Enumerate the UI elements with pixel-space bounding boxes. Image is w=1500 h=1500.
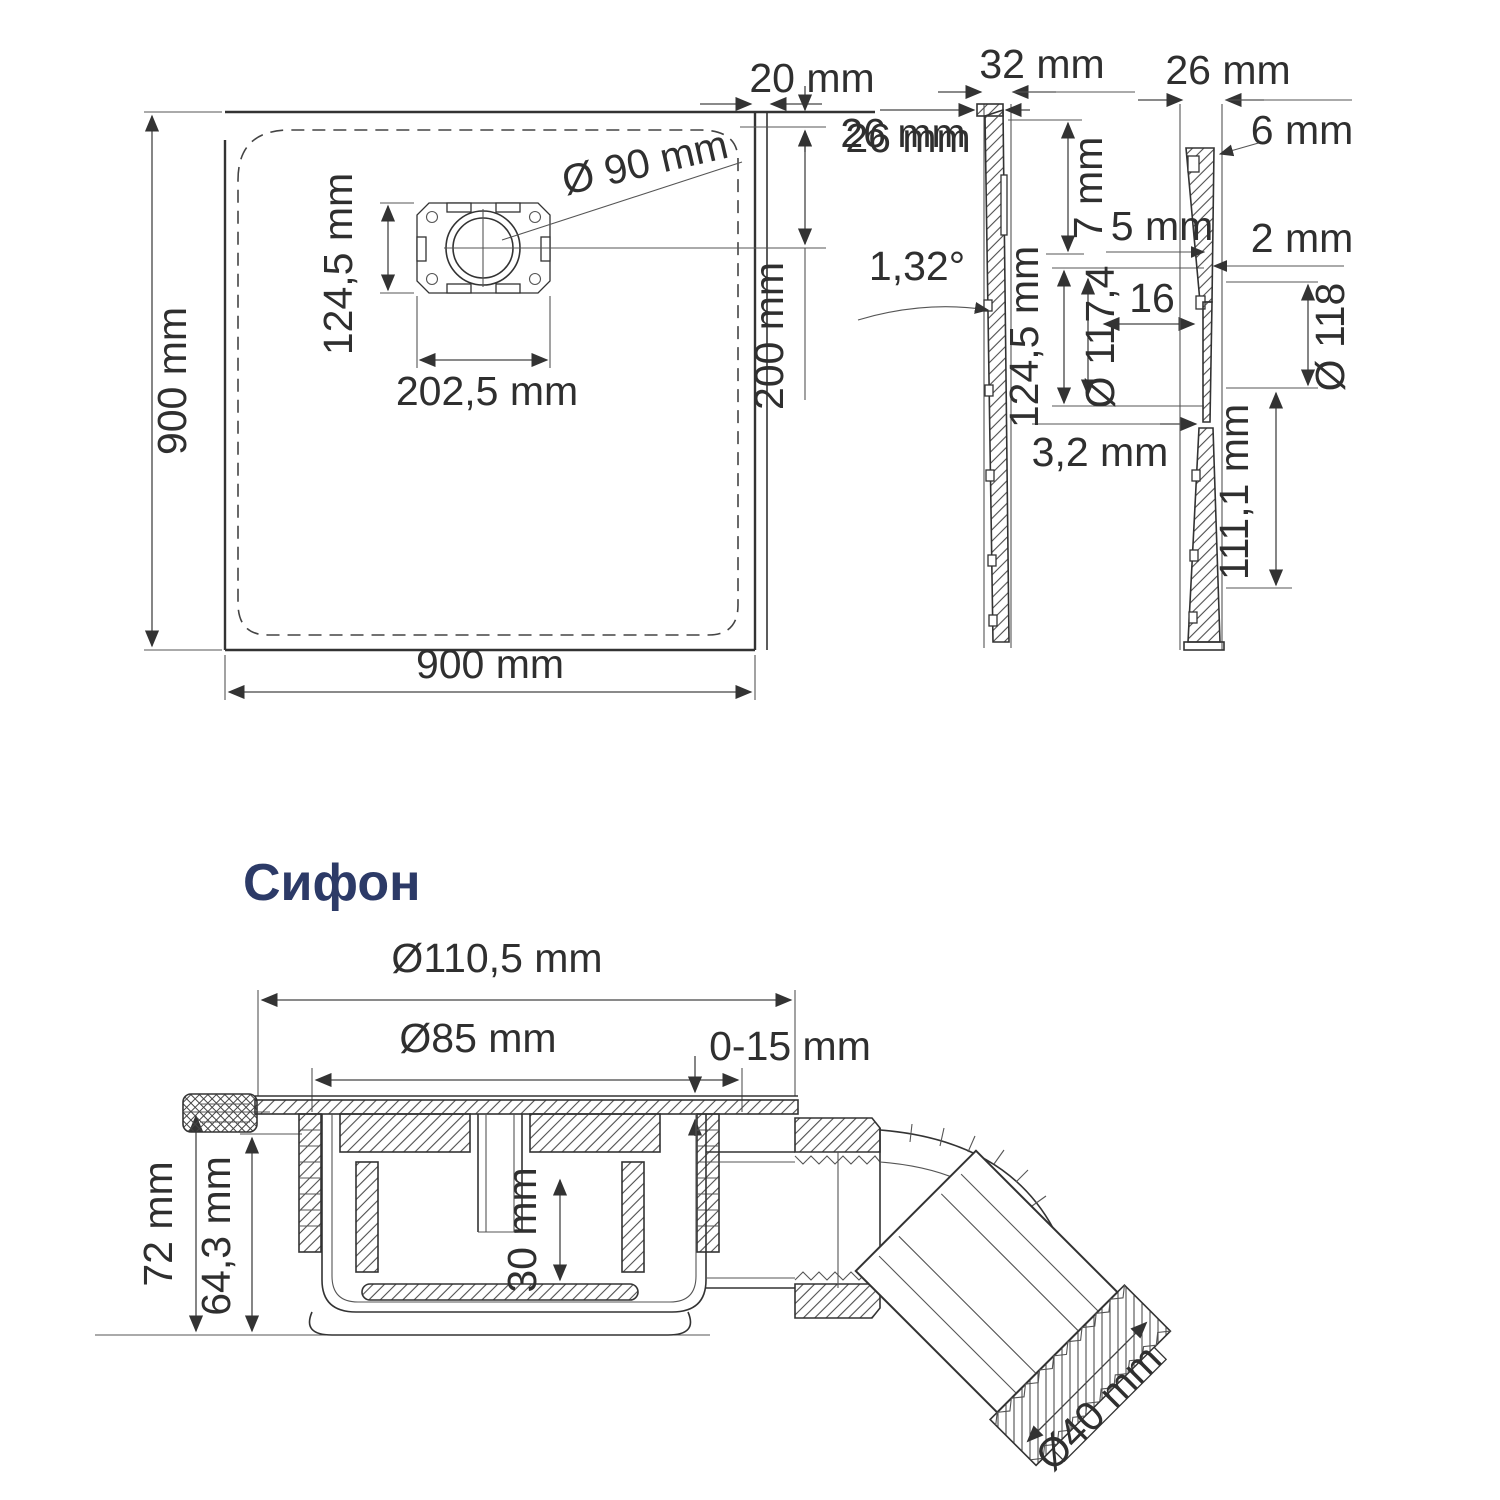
dim-body-dia: Ø85 mm bbox=[399, 1015, 556, 1061]
dim-drain-diameter: Ø 90 mm bbox=[558, 121, 733, 204]
technical-drawing-page: 900 mm 900 mm 124,5 mm 202,5 mm Ø 90 mm … bbox=[0, 0, 1500, 1500]
dim-sec-depth: 111,1 mm bbox=[1211, 404, 1257, 580]
insert-wall-left bbox=[356, 1162, 378, 1272]
dim-sec-right-top-width: 26 mm bbox=[1165, 47, 1290, 93]
dim-sec-right-edge: 6 mm bbox=[1251, 107, 1354, 153]
dim-top-gap: 20 mm bbox=[749, 55, 874, 101]
section-left-slot bbox=[1001, 175, 1007, 235]
threaded-post-left bbox=[299, 1114, 321, 1252]
dim-sec-span: 124,5 mm bbox=[1001, 246, 1047, 428]
plan-view: 900 mm 900 mm 124,5 mm 202,5 mm Ø 90 mm … bbox=[144, 55, 966, 700]
connector-nut-top bbox=[795, 1118, 880, 1152]
dim-sec-step-left: 5 mm bbox=[1111, 203, 1214, 249]
flange-washer bbox=[255, 1100, 798, 1114]
dim-inner-height: 64,3 mm bbox=[193, 1156, 239, 1316]
dim-sec-left-thickness: 3,2 mm bbox=[1032, 429, 1169, 475]
technical-drawing: 900 mm 900 mm 124,5 mm 202,5 mm Ø 90 mm … bbox=[0, 0, 1500, 1500]
dim-center-offset: 200 mm bbox=[746, 262, 792, 410]
dim-cup-depth: 30 mm bbox=[499, 1167, 545, 1292]
dim-drain-width: 202,5 mm bbox=[396, 368, 578, 414]
base bbox=[310, 1312, 691, 1335]
siphon-view: Сифон Ø110,5 mm Ø85 mm 0-15 mm 72 mm 64,… bbox=[95, 854, 1189, 1484]
grate-left bbox=[340, 1114, 470, 1152]
section-right-slot bbox=[1188, 156, 1199, 172]
dim-sec-inner-dia: Ø 117,4 bbox=[1077, 266, 1123, 409]
connector-nut-bottom bbox=[795, 1284, 880, 1318]
dim-tray-width: 900 mm bbox=[416, 641, 564, 687]
angle-arc bbox=[858, 307, 988, 320]
siphon-heading: Сифон bbox=[243, 854, 421, 912]
dim-adjust: 0-15 mm bbox=[709, 1023, 871, 1069]
dim-total-height: 72 mm bbox=[135, 1161, 181, 1286]
drain-side-tab bbox=[541, 237, 550, 261]
dim-sec-gap: 16 bbox=[1129, 275, 1175, 321]
section-right-bottom-cap bbox=[1184, 642, 1224, 650]
drain-side-tab bbox=[417, 237, 426, 261]
dim-drain-height: 124,5 mm bbox=[315, 173, 361, 355]
insert-wall-right bbox=[622, 1162, 644, 1272]
dim-sec-left-angle: 1,32° bbox=[869, 243, 965, 289]
section-middle-dimensions: 124,5 mm Ø 117,4 16 bbox=[1001, 246, 1204, 428]
dim-flange-dia: Ø110,5 mm bbox=[391, 935, 602, 981]
drain-notch bbox=[447, 284, 471, 293]
dim-sec-outer-dia: Ø 118 bbox=[1307, 283, 1353, 392]
dim-sec-left-lip: 7 mm bbox=[1065, 137, 1111, 240]
threaded-post-right bbox=[697, 1114, 719, 1252]
drain-notch bbox=[447, 203, 471, 212]
clamp-bolt bbox=[183, 1094, 257, 1132]
outlet-pipe: Ø40 mm bbox=[849, 1144, 1189, 1484]
drain-notch bbox=[496, 284, 520, 293]
dim-tray-height: 900 mm bbox=[149, 307, 195, 455]
drain-notch bbox=[496, 203, 520, 212]
section-view-right: 26 mm 6 mm 5 mm 2 mm Ø 118 111,1 mm bbox=[1106, 47, 1353, 650]
grate-right bbox=[530, 1114, 660, 1152]
dim-sec-step-right: 2 mm bbox=[1251, 215, 1354, 261]
dim-sec-left-edge: 26 mm bbox=[845, 115, 970, 161]
dim-sec-left-top-width: 32 mm bbox=[979, 41, 1104, 87]
